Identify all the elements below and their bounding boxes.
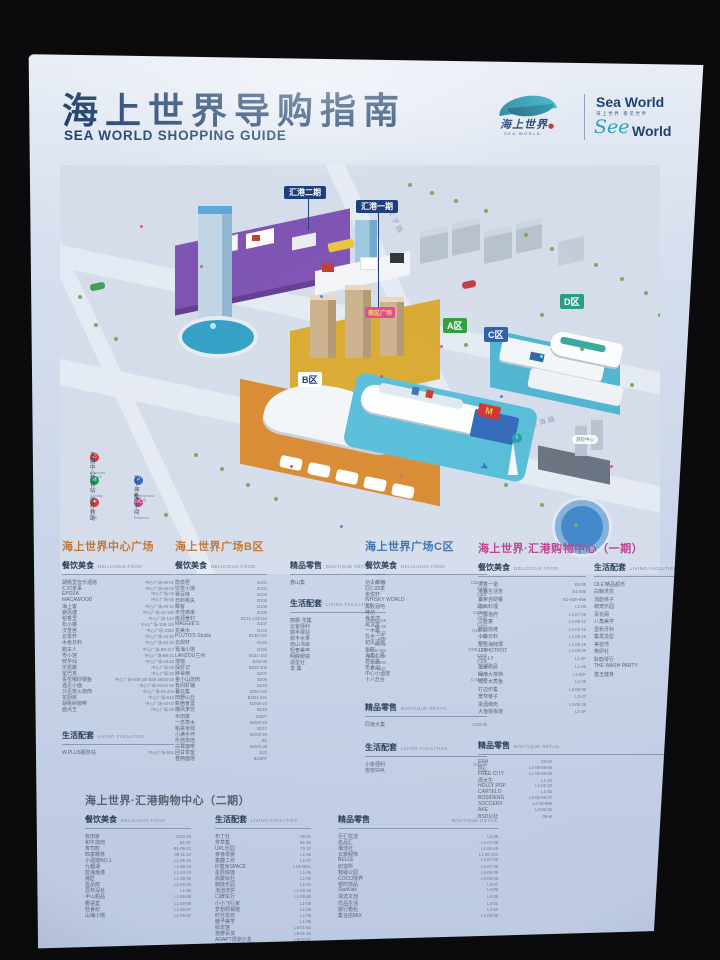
directory-row: W.PLUS服务站中心广场-B01: [62, 749, 174, 755]
label-huigang-phase2: 汇港二期: [284, 186, 326, 199]
leader-line: [378, 212, 379, 308]
directory-row: 山海小馆L1-06-37: [85, 912, 191, 918]
warehouse: [452, 218, 480, 256]
brand-script-zh: 海上世界●: [500, 116, 555, 132]
brand-divider: [584, 94, 585, 140]
label-south-plaza: 南区广场: [365, 307, 395, 318]
leader-line: [308, 198, 309, 230]
directory-row: 十八灶台C-10799: [365, 676, 487, 682]
directory-row: THE WASH PARTYL1-06-30: [594, 663, 706, 671]
directory-row: 八角美学B1-2F: [594, 618, 706, 626]
pedestrian-dots: [140, 225, 143, 228]
section-title-huigang2: 海上世界·汇港购物中心（二期）: [85, 792, 250, 808]
building-tan: [310, 295, 336, 358]
warehouse: [420, 226, 448, 264]
directory-row: 清真一诺B2-08: [478, 581, 586, 589]
building-tower: [198, 210, 232, 325]
group-s4-food: 餐饮美食DELICIOUS FOOD 清真一诺B2-08港囊生活茶B1-060寰…: [478, 562, 586, 716]
section-title-center-plaza: 海上世界中心广场: [62, 538, 154, 554]
group-s2-food: 餐饮美食DELICIOUS FOOD 隐泉居B101饮茶小馆B102赛百味B10…: [175, 560, 267, 761]
section-title-plaza-b: 海上世界广场B区: [175, 538, 264, 554]
directory-row: 莆苗海鲜焗L1-06-19: [478, 641, 586, 649]
brand-word1: Sea World: [596, 94, 664, 110]
directory-row: 望潮甜品L1-26: [478, 663, 586, 671]
label-zone-a: A区: [443, 318, 467, 333]
directory-row: 悦容SPAC-92: [365, 767, 487, 773]
directory-row: 三秋宴L1-09-12: [478, 618, 586, 626]
directory-row: 打边炉集L2-06-08: [478, 686, 586, 694]
building-tower-top: [198, 206, 232, 214]
directory-row: 面点王中心广场-06: [62, 706, 174, 712]
group-s5-retail: 精品零售BOUTIQUE RETAIL 巨汇优选L1-08名品汇L1-07-08…: [338, 814, 498, 918]
directory-row: 集合店MIXL1-06-06: [338, 912, 498, 918]
brand-word3: World: [632, 123, 671, 139]
directory-row: 百花阁B2-76A-250: [594, 611, 706, 619]
directory-row: 椒爱水煮鱼L2-06: [478, 678, 586, 686]
group-s5-food: 餐饮美食DELICIOUS FOOD 有田家2019-20和牛烧肉B1-07寿司…: [85, 814, 191, 918]
warehouse: [484, 226, 512, 264]
section-title-huigang1: 海上世界·汇港购物中心（一期）: [478, 540, 643, 556]
car-red: [461, 280, 476, 290]
group-s1-living: 生活配套LIVING FACILITIES W.PLUS服务站中心广场-B01: [62, 730, 174, 755]
gray-tower: [591, 417, 603, 450]
directory-row: 笑研社B6-55D: [594, 648, 706, 656]
directory-row: 552-LYL1-2F: [478, 656, 586, 664]
directory-row: 叁两面馆B2M07: [175, 755, 267, 761]
directory-row: 宽窄巷子L2-07: [478, 693, 586, 701]
directory-row: 聆韵琴行L1-01-30: [594, 656, 706, 664]
directory-row: 壹帆牙科B1-09E: [594, 626, 706, 634]
directory-row: 白鲸洗衣B1-62: [594, 588, 706, 596]
directory-row: 野韵烧烤L1-02-15: [478, 626, 586, 634]
label-cruise-center: 游轮中心: [572, 435, 598, 444]
fountain-pool: [178, 316, 258, 358]
section-title-plaza-c: 海上世界广场C区: [365, 538, 454, 554]
directory-row: 柒酒烤肉L2-08-28: [478, 701, 586, 709]
group-s4-living: 生活配套LIVING FACILITIES OLE'精品超市B1白鲸洗衣B1-6…: [594, 562, 706, 678]
group-s4-retail: 精品零售BOUTIQUE RETAIL ERA05-02MJL1-05-05-0…: [478, 740, 706, 819]
fountain-jet: [210, 323, 216, 329]
shop-sign-red: [322, 263, 334, 272]
directory-row: 123HOTPOTL1-08-29: [478, 648, 586, 656]
brand-lockup: 海上世界● SEA WORLD Sea World 海上世界 看见世界 See …: [498, 90, 698, 150]
photo-of-shopping-guide-lightbox: { "colors":{"title_navy":"#1d3f6b","sect…: [0, 0, 720, 960]
directory-row: 小葵日料L1-06-18: [478, 633, 586, 641]
directory-row: 港囊生活茶B1-060: [478, 588, 586, 596]
warehouse: [558, 230, 584, 266]
group-s3-food: 餐饮美食DELICIOUS FOOD 功夫茶馆C02-064同仁四季C020金悦…: [365, 560, 487, 682]
page-title-zh: 海上世界导购指南: [62, 82, 406, 134]
directory-row: 浅韵亲子B1-58: [594, 596, 706, 604]
label-zone-d: D区: [560, 294, 584, 309]
directory-row: 滨海驿站L9-08: [215, 942, 311, 948]
page-title-en: SEA WORLD SHOPPING GUIDE: [64, 128, 287, 143]
directory-row: 隐石料理L1-05: [478, 603, 586, 611]
directory-row: 萌宠乐园B1-9F: [594, 603, 706, 611]
directory-row: 大渔铁板烧L2-2F: [478, 708, 586, 716]
group-s1-food: 餐饮美食DELICIOUS FOOD 胡桃里音乐酒馆中心广场-09-01仁村茶事…: [62, 560, 174, 713]
building-tan: [380, 297, 404, 356]
directory-row: 集发造型B2-01: [594, 633, 706, 641]
warehouse: [516, 218, 542, 254]
brand-sub-en: SEA WORLD: [504, 131, 541, 136]
group-s3-retail: 精品零售BOUTIQUE RETAIL 同渔大集C2M-05: [365, 702, 487, 727]
group-s3-living: 生活配套LIVING FACILITIES 小象便利C04-05悦容SPAC-9…: [365, 742, 487, 773]
directory-row: 巴蜀渔府L1-07-08: [478, 611, 586, 619]
directory-row: 闽南大排档L1-02F: [478, 671, 586, 679]
directory-row: 同渔大集C2M-05: [365, 721, 487, 727]
map-legend: ✆ 客服中心Customer Service M 地铁站Subway P 地下停…: [90, 453, 250, 523]
shopping-guide-poster: 海上世界导购指南 SEA WORLD SHOPPING GUIDE 海上世界● …: [28, 54, 706, 950]
group-s5-living: 生活配套LIVING FACILITIES 布丁社06-01芳草集B1-05UP…: [215, 814, 311, 948]
statue: [508, 441, 518, 475]
shop-sign-black: [390, 253, 404, 263]
label-zone-b: B区: [298, 372, 322, 387]
directory-row: 寰宇自助餐B1-048~059: [478, 596, 586, 604]
billboard-logo: [252, 235, 260, 241]
shop-sign-nike: [360, 257, 378, 270]
building-tan: [345, 285, 371, 358]
site-map-panel: M i ➤ 汇港二期 汇港一期 A区 B区 C区 D区 南区广场 太子路 望海路…: [60, 165, 660, 574]
brand-see-script: See: [594, 116, 630, 138]
label-zone-c: C区: [484, 327, 508, 342]
car-green: [89, 282, 105, 292]
directory-row: 基玉健身L1-M: [594, 671, 706, 679]
directory-row: 美容湾B5-03: [594, 641, 706, 649]
trees: [78, 295, 82, 299]
directory-row: OLE'精品超市B1: [594, 581, 706, 589]
label-huigang-phase1: 汇港一期: [356, 200, 398, 213]
